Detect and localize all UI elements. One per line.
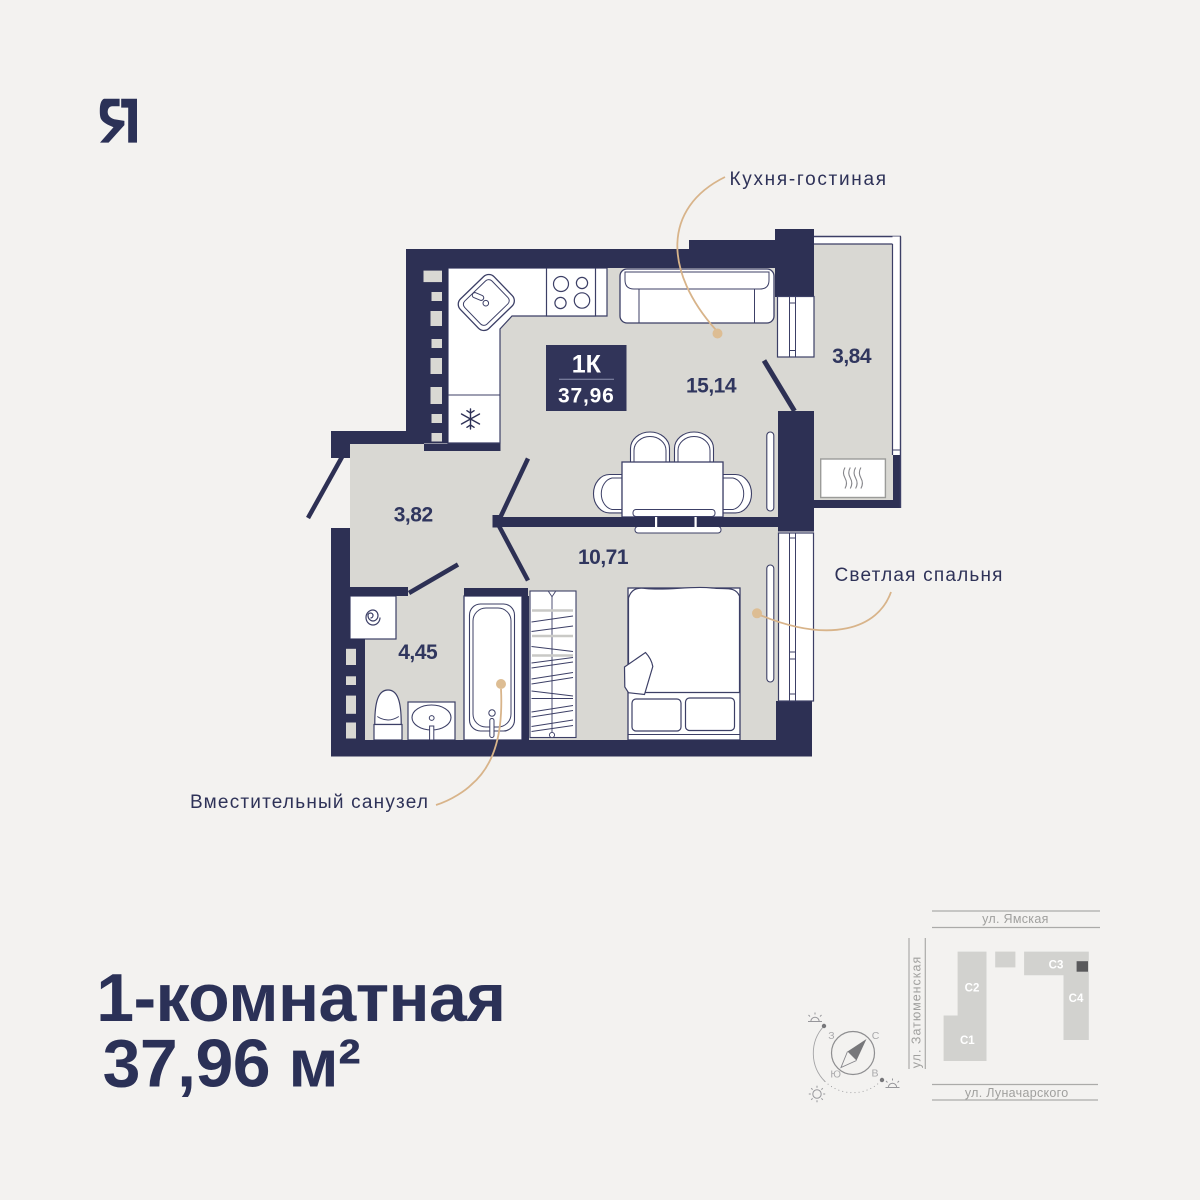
svg-text:37,96: 37,96 <box>558 385 615 408</box>
svg-text:З: З <box>828 1030 834 1042</box>
svg-text:10,71: 10,71 <box>578 546 629 569</box>
svg-text:В: В <box>871 1068 878 1080</box>
svg-text:Вместительный санузел: Вместительный санузел <box>190 792 429 813</box>
svg-text:Ю: Ю <box>830 1069 841 1081</box>
svg-text:ул. Ямская: ул. Ямская <box>982 912 1049 926</box>
svg-text:3,84: 3,84 <box>832 345 872 368</box>
svg-text:37,96 м²: 37,96 м² <box>103 1025 361 1101</box>
svg-text:С2: С2 <box>965 983 980 995</box>
svg-text:ул. Затюменская: ул. Затюменская <box>909 956 923 1069</box>
svg-text:С3: С3 <box>1049 959 1064 971</box>
svg-text:С4: С4 <box>1069 993 1084 1005</box>
svg-text:Светлая спальня: Светлая спальня <box>835 565 1004 586</box>
svg-text:4,45: 4,45 <box>398 641 438 664</box>
svg-text:ул. Луначарского: ул. Луначарского <box>965 1086 1069 1100</box>
svg-text:С: С <box>872 1030 880 1042</box>
svg-text:1К: 1К <box>572 351 602 379</box>
svg-text:Кухня-гостиная: Кухня-гостиная <box>730 169 888 190</box>
svg-text:С1: С1 <box>960 1035 975 1047</box>
svg-text:15,14: 15,14 <box>686 374 737 397</box>
svg-text:3,82: 3,82 <box>394 503 433 526</box>
